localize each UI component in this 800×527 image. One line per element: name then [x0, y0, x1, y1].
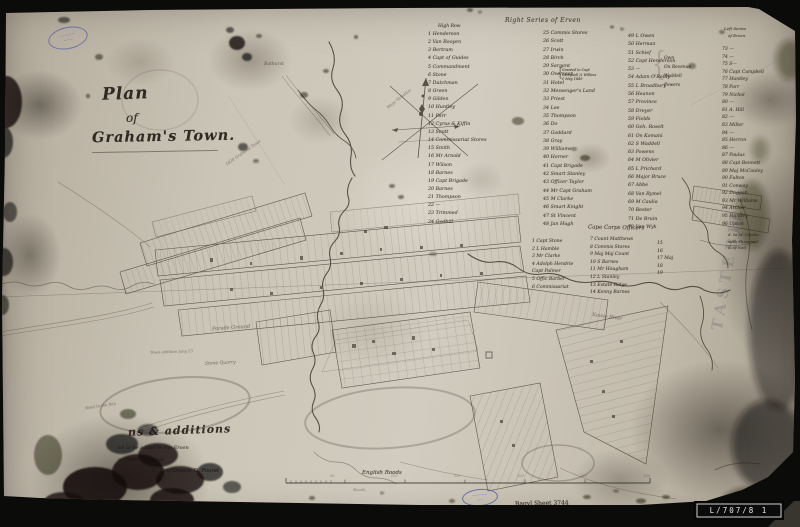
- archive-reference-label: L/707/8 1: [694, 501, 784, 520]
- archive-reference-text: L/707/8 1: [710, 506, 769, 515]
- ink-stains: [0, 0, 800, 527]
- map-paper: Plan of Graham's Town. 1820 Grahams Town…: [0, 0, 800, 527]
- photo-of-map: { "photo": { "archive_label": "L/707/8 1…: [0, 0, 800, 527]
